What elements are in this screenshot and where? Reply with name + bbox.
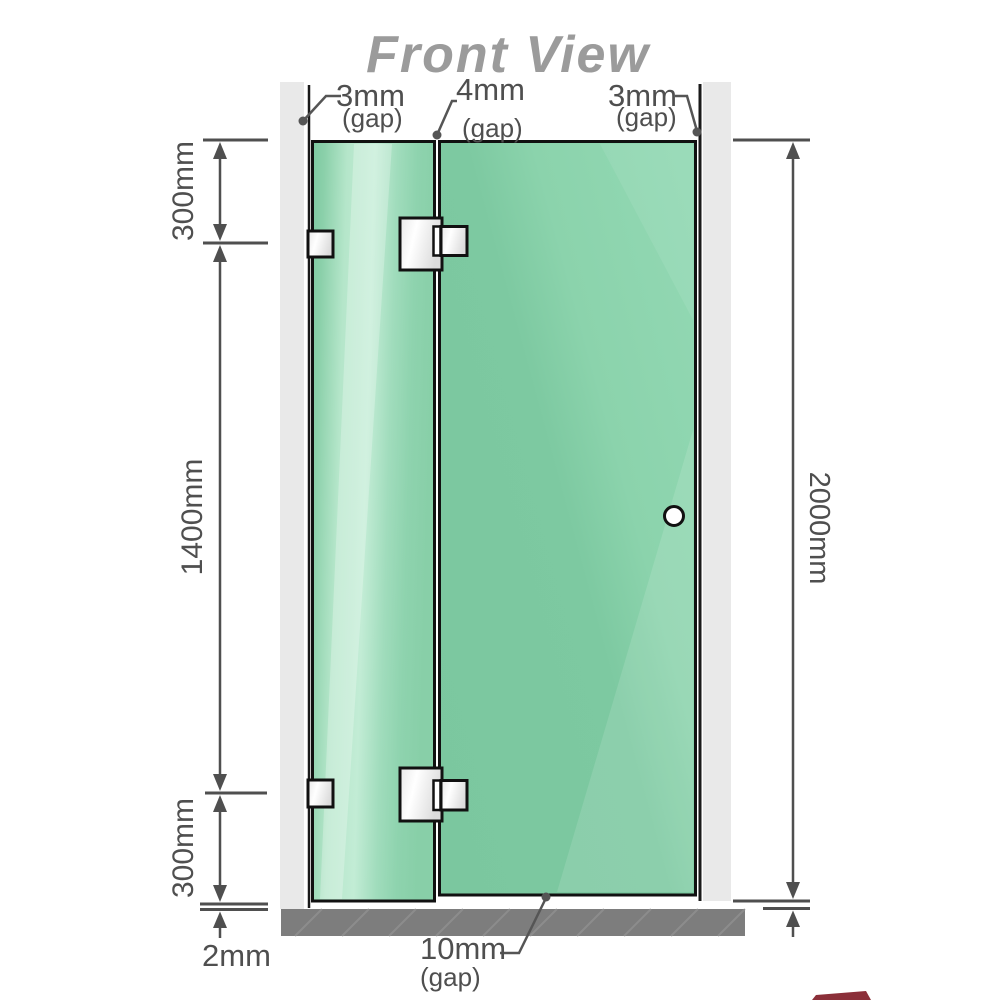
- logo-sliver: [812, 991, 871, 1000]
- front-view-diagram: Front View: [0, 0, 1000, 1000]
- right-wall-profile: [703, 82, 731, 901]
- door-handle: [665, 507, 684, 526]
- dim-height-label: 2000mm: [803, 472, 835, 585]
- dim-floor-label: 2mm: [202, 938, 271, 973]
- leader-gap-middle: [437, 101, 457, 135]
- wall-bracket-bottom: [308, 780, 333, 807]
- dim-bottom-label: 300mm: [167, 798, 200, 898]
- dim-top-label: 300mm: [167, 141, 200, 241]
- left-dimensions: [200, 140, 268, 938]
- dim-middle-label: 1400mm: [176, 459, 209, 576]
- gap-right-word: (gap): [616, 102, 677, 132]
- gap-left-word: (gap): [342, 103, 403, 133]
- gap-middle-label: 4mm: [456, 72, 525, 107]
- left-wall-profile: [280, 82, 304, 909]
- right-dimensions: [733, 140, 810, 937]
- wall-bracket-top: [308, 231, 333, 257]
- gap-bottom-word: (gap): [420, 962, 481, 992]
- gap-bottom-label: 10mm: [420, 931, 506, 966]
- floor: [281, 909, 745, 936]
- diagram-canvas: Front View: [0, 0, 1000, 1000]
- leader-gap-right: [675, 96, 697, 131]
- gap-middle-word: (gap): [462, 113, 523, 143]
